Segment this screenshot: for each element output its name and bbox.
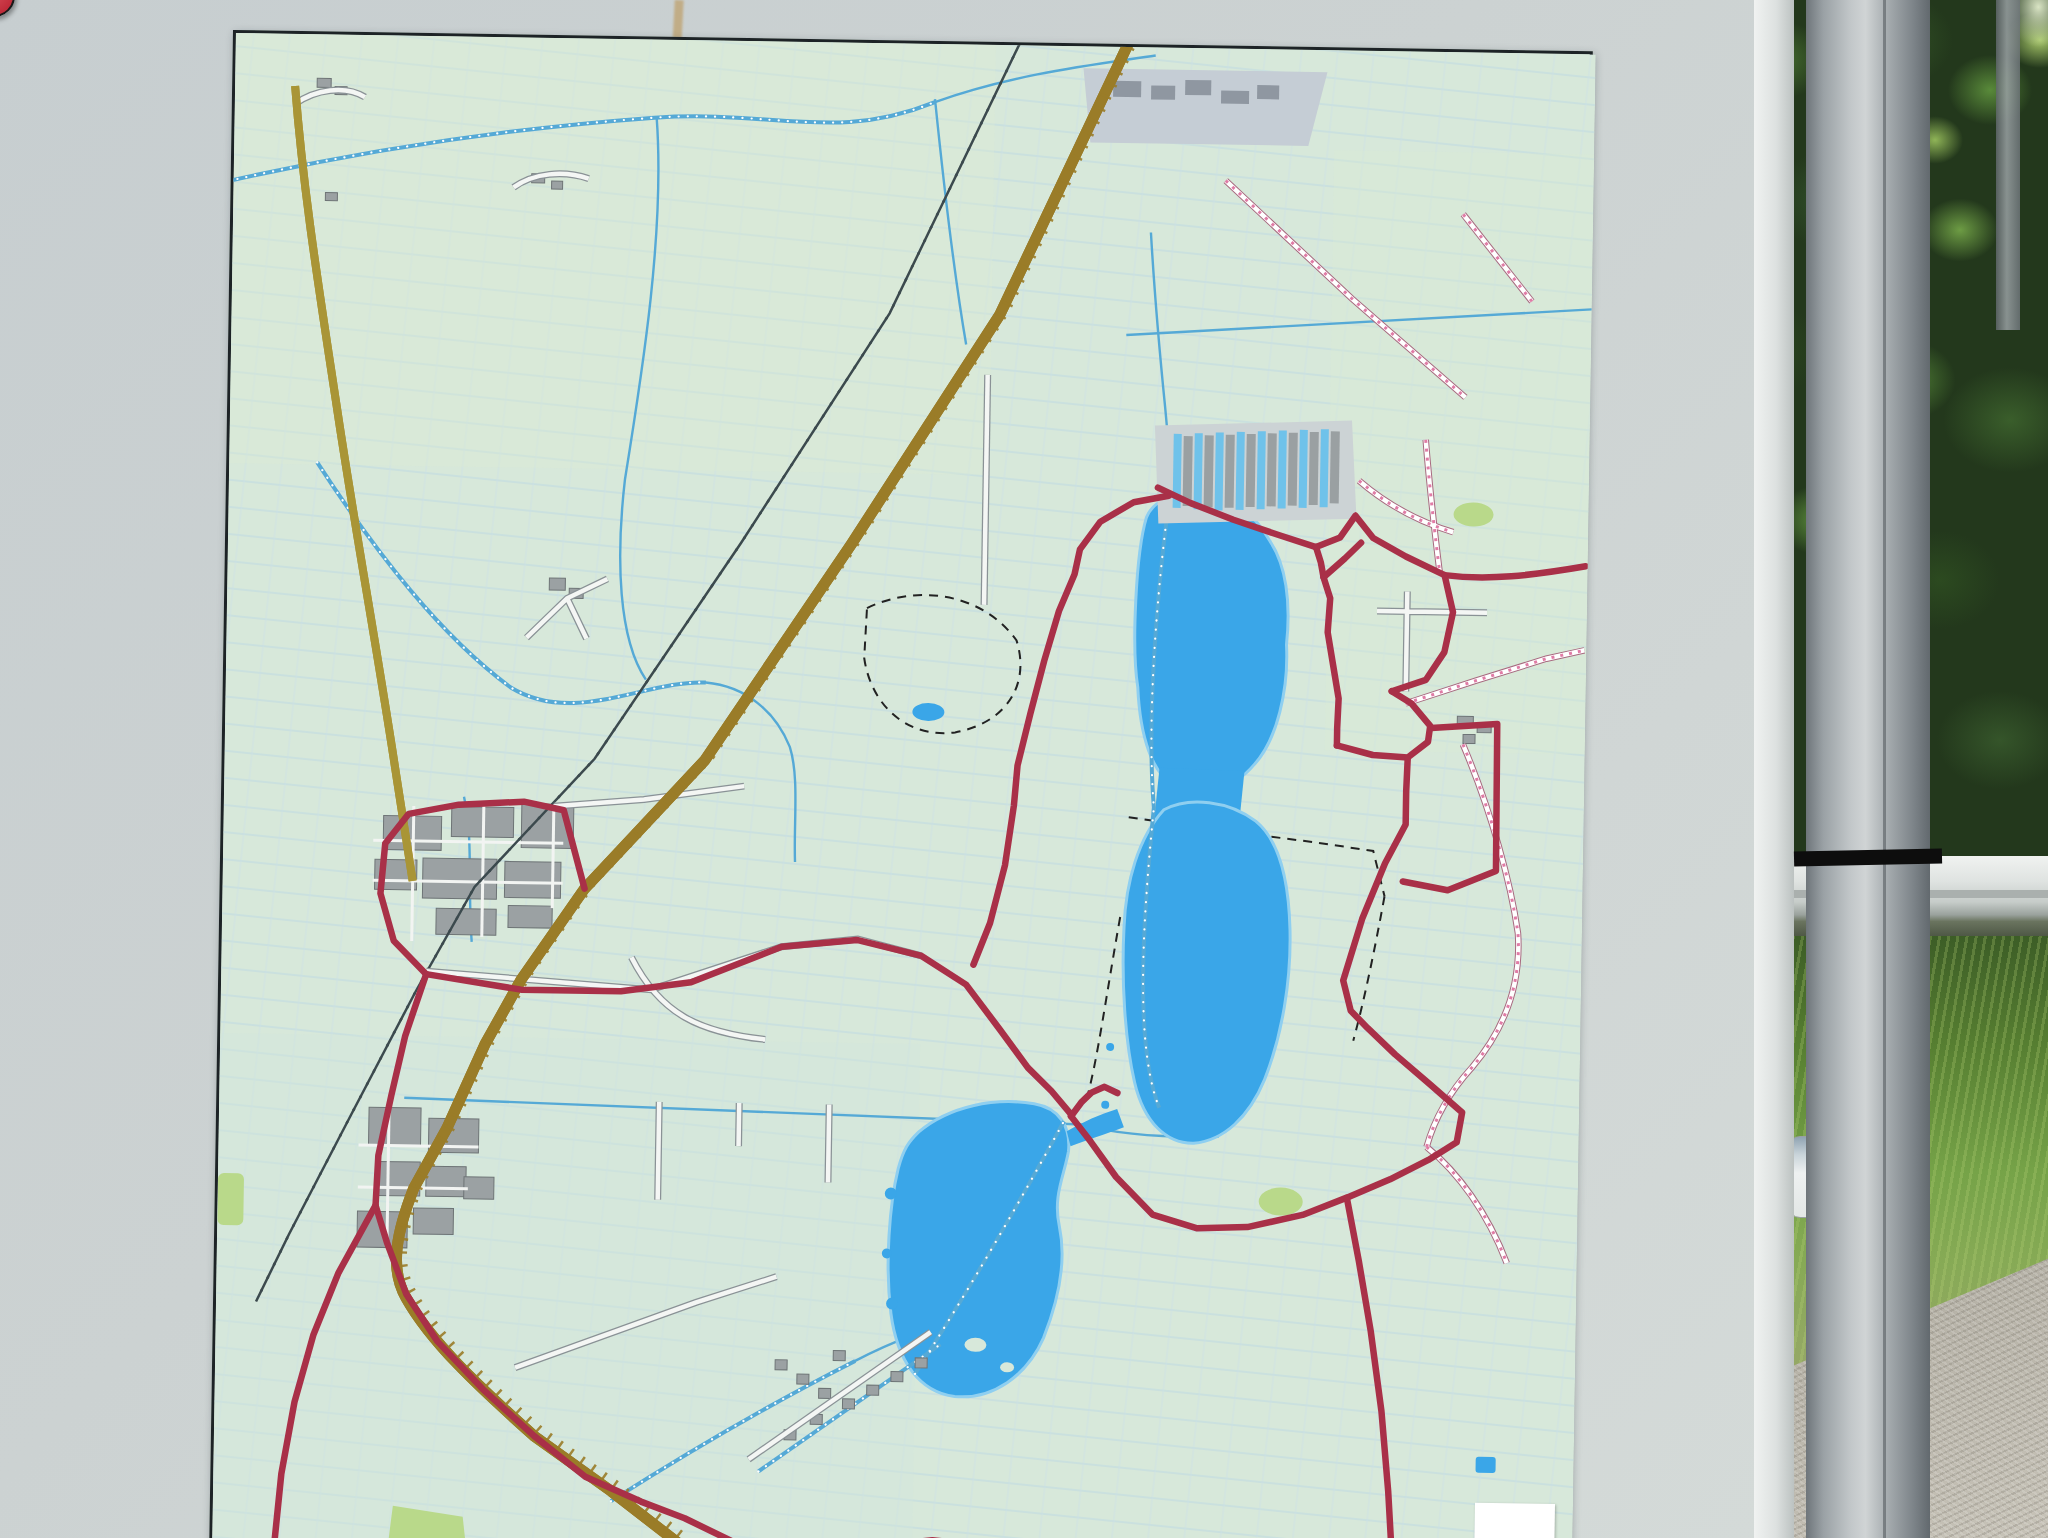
- kv-plan-logo: [1474, 1503, 1555, 1538]
- far-pole: [1996, 0, 2020, 330]
- board-edge-post: [1754, 0, 1794, 1538]
- map-geography: [211, 33, 1595, 1538]
- cut-badge-top-left: [0, 0, 15, 17]
- metal-pole: [1806, 0, 1930, 1538]
- sign-board: [0, 0, 1756, 1538]
- cable-tie: [1794, 848, 1942, 866]
- photo-of-map-sign: [0, 0, 2048, 1538]
- map-panel: [208, 30, 1592, 1538]
